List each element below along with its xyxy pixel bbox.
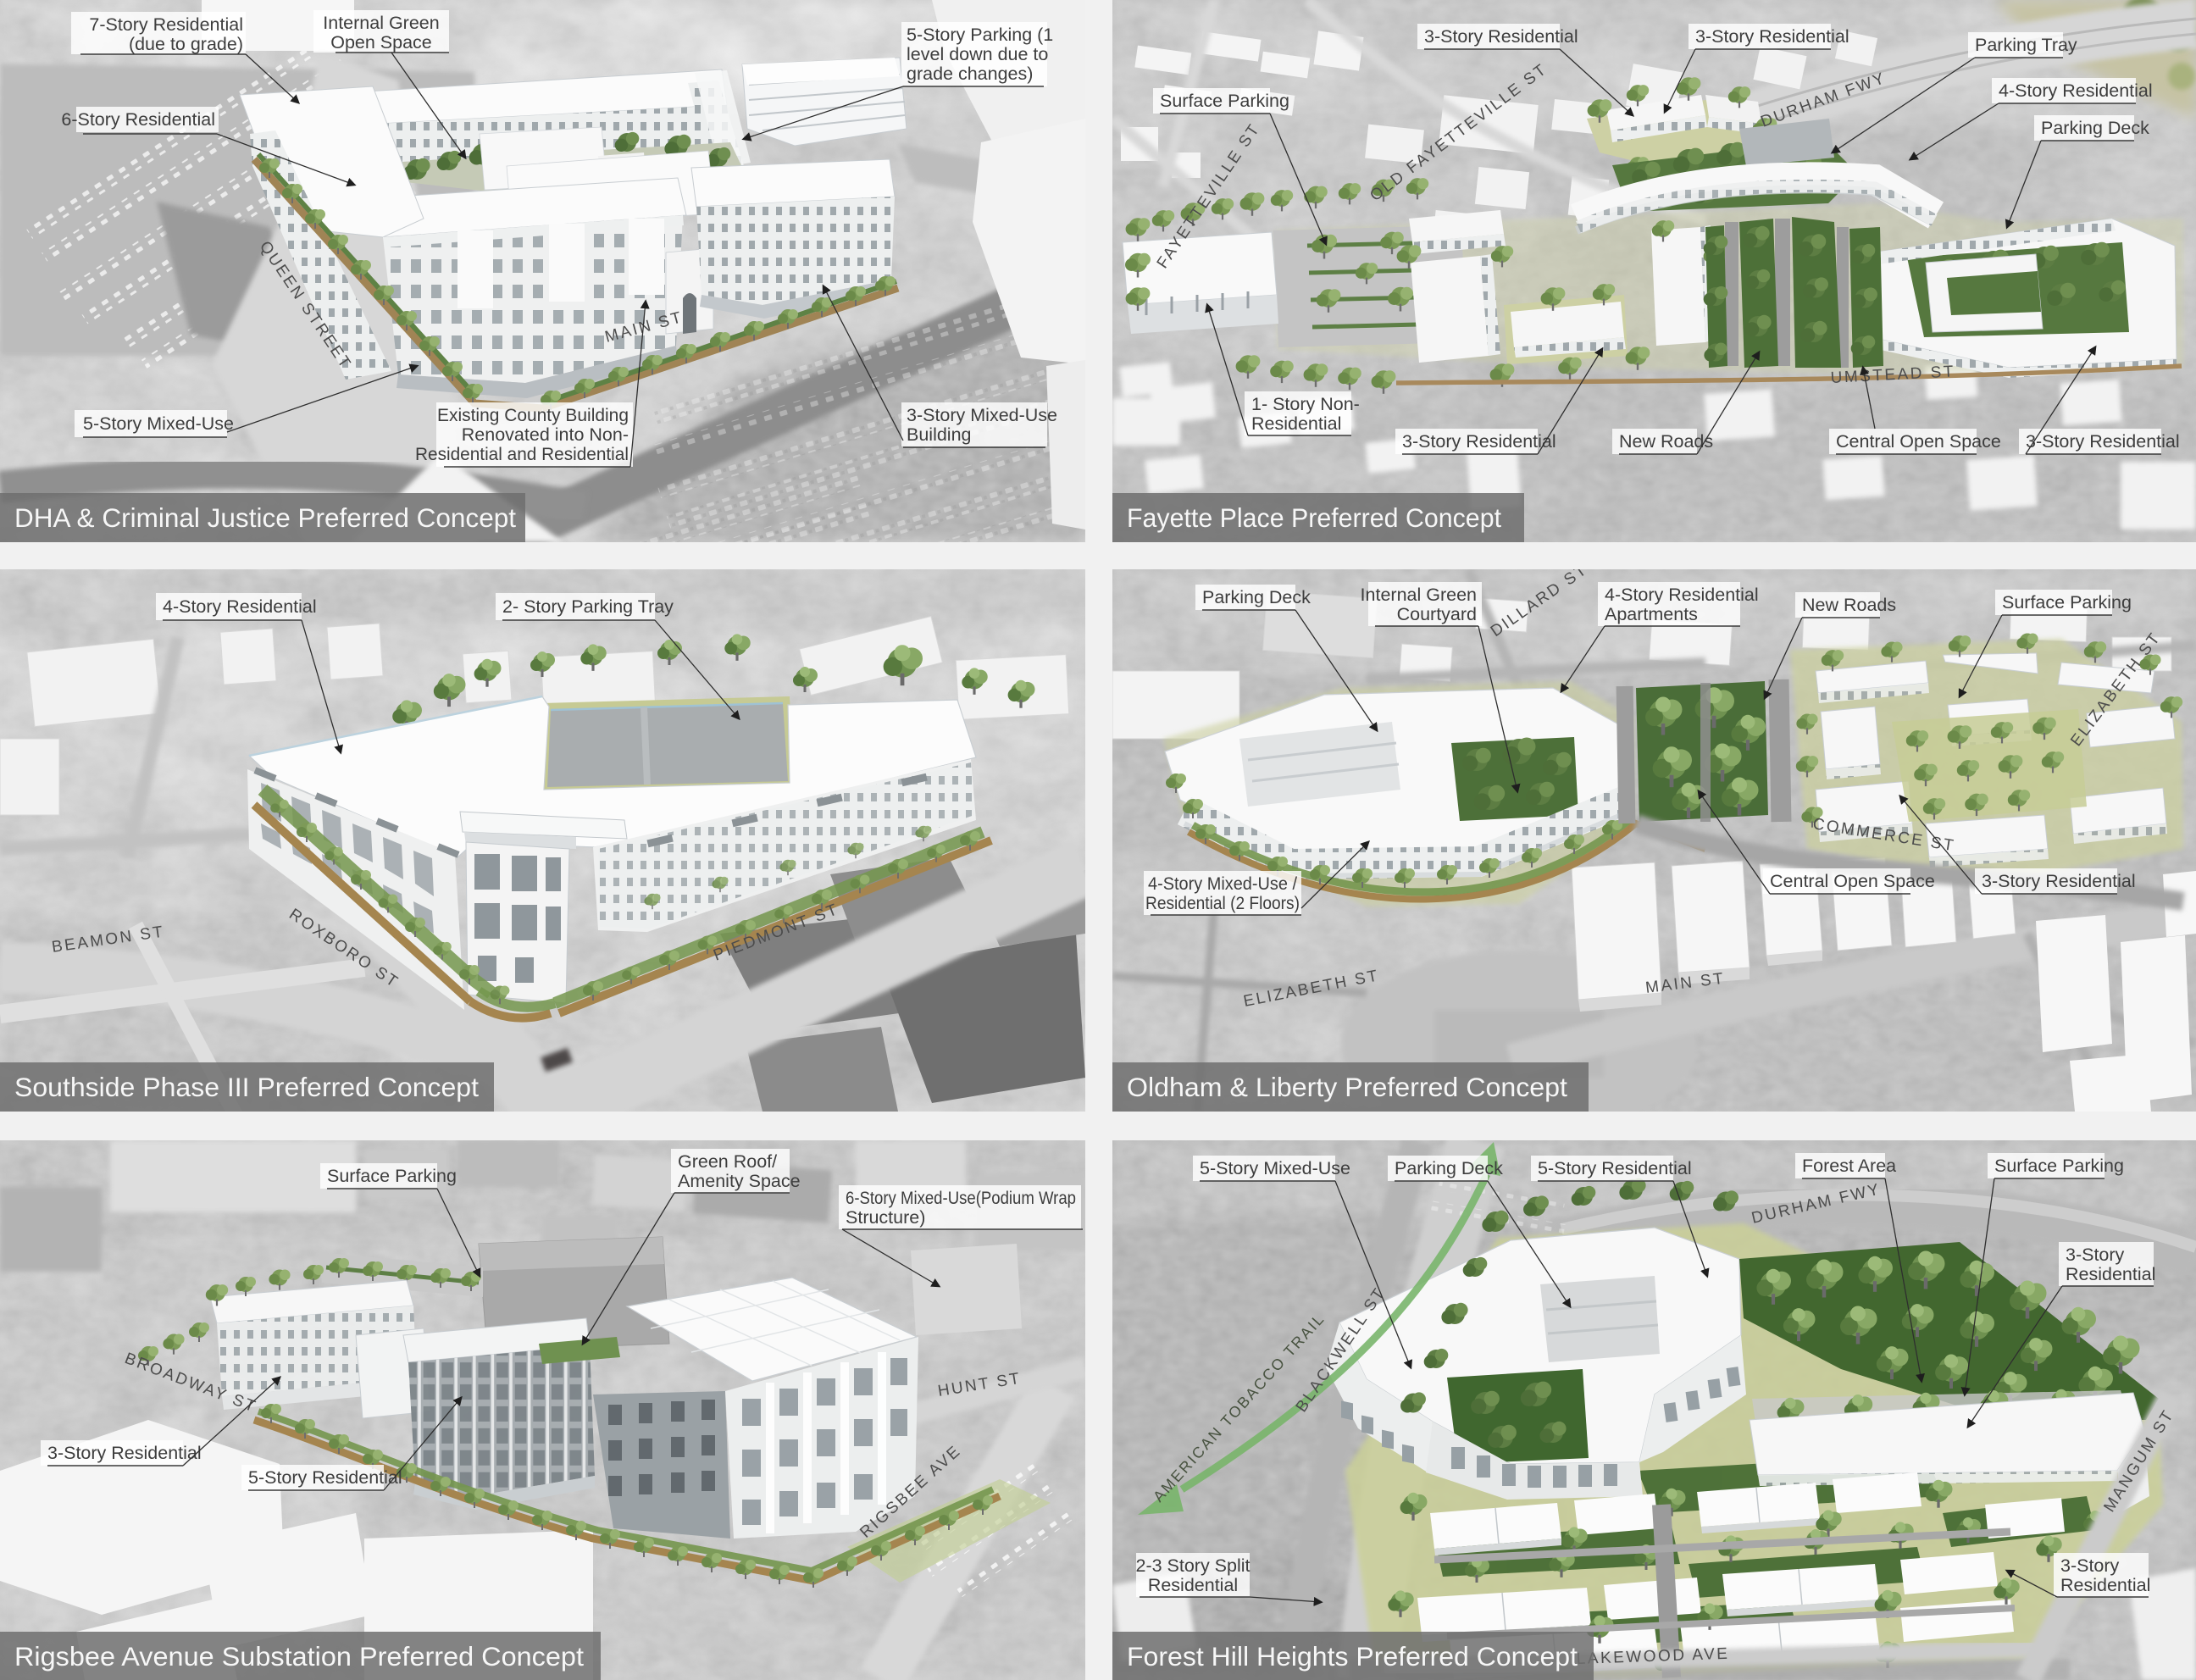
svg-text:Residential: Residential [1148,1575,1238,1595]
svg-text:2-3 Story Split: 2-3 Story Split [1135,1555,1250,1576]
svg-text:Residential: Residential [2066,1264,2155,1284]
svg-text:3-Story Residential: 3-Story Residential [1982,871,2136,891]
svg-text:Oldham & Liberty Preferred Con: Oldham & Liberty Preferred Concept [1127,1072,1567,1102]
svg-text:New Roads: New Roads [1619,431,1713,452]
svg-text:3-Story Residential: 3-Story Residential [1695,26,1849,47]
svg-text:Forest Area: Forest Area [1802,1156,1896,1176]
svg-text:Residential (2 Floors): Residential (2 Floors) [1145,893,1300,913]
svg-text:6-Story Residential: 6-Story Residential [61,109,215,130]
svg-text:3-Story Residential: 3-Story Residential [2026,431,2180,452]
svg-text:Fayette Place Preferred Concep: Fayette Place Preferred Concept [1127,502,1501,533]
svg-text:4-Story Residential: 4-Story Residential [163,596,317,617]
svg-text:grade changes): grade changes) [907,64,1033,84]
svg-text:Parking Deck: Parking Deck [1202,587,1311,607]
svg-text:Central Open Space: Central Open Space [1836,431,2001,452]
svg-text:level down due to: level down due to [907,44,1048,64]
svg-text:3-Story Residential: 3-Story Residential [47,1443,202,1463]
svg-text:Rigsbee Avenue Substation Pref: Rigsbee Avenue Substation Preferred Conc… [14,1641,584,1672]
svg-text:4-Story Residential: 4-Story Residential [1605,585,1759,605]
svg-text:Green Roof/: Green Roof/ [678,1151,777,1172]
svg-text:Courtyard: Courtyard [1397,604,1477,624]
svg-text:7-Story Residential: 7-Story Residential [89,14,243,35]
svg-text:Residential: Residential [2060,1575,2150,1595]
svg-text:Forest Hill Heights Preferred: Forest Hill Heights Preferred Concept [1127,1641,1578,1672]
svg-text:3-Story: 3-Story [2060,1555,2120,1576]
svg-text:New Roads: New Roads [1802,595,1896,615]
svg-text:Internal Green: Internal Green [323,13,439,33]
svg-text:3-Story: 3-Story [2066,1245,2125,1265]
svg-text:DHA & Criminal Justice Preferr: DHA & Criminal Justice Preferred Concept [14,502,516,533]
svg-text:Internal Green: Internal Green [1361,585,1477,605]
svg-text:Residential: Residential [1251,413,1341,434]
svg-text:6-Story Mixed-Use(Podium Wrap: 6-Story Mixed-Use(Podium Wrap [846,1188,1076,1208]
svg-text:Parking Deck: Parking Deck [1395,1158,1503,1178]
svg-text:3-Story Residential: 3-Story Residential [1424,26,1578,47]
svg-text:4-Story Mixed-Use /: 4-Story Mixed-Use / [1148,873,1297,894]
svg-text:5-Story Residential: 5-Story Residential [248,1467,402,1488]
svg-text:Apartments: Apartments [1605,604,1698,624]
svg-text:Surface Parking: Surface Parking [327,1166,457,1186]
svg-text:5-Story Mixed-Use: 5-Story Mixed-Use [1200,1158,1350,1178]
svg-text:Open Space: Open Space [330,32,432,53]
svg-text:(due to grade): (due to grade) [129,34,243,54]
svg-text:Renovated into Non-: Renovated into Non- [462,424,629,445]
svg-text:4-Story Residential: 4-Story Residential [1999,80,2153,101]
svg-text:1- Story Non-: 1- Story Non- [1251,394,1360,414]
svg-text:3-Story Mixed-Use: 3-Story Mixed-Use [907,405,1057,425]
svg-text:Building: Building [907,424,972,445]
svg-text:5-Story Parking (1: 5-Story Parking (1 [907,25,1053,45]
svg-text:Structure): Structure) [846,1207,925,1228]
svg-text:Residential and Residential: Residential and Residential [415,444,629,464]
svg-text:5-Story Mixed-Use: 5-Story Mixed-Use [83,413,234,434]
svg-text:Surface Parking: Surface Parking [2002,592,2132,613]
svg-text:Amenity Space: Amenity Space [678,1171,801,1191]
svg-text:Surface Parking: Surface Parking [1160,91,1289,111]
svg-text:5-Story Residential: 5-Story Residential [1538,1158,1692,1178]
svg-text:Parking Deck: Parking Deck [2041,118,2149,138]
svg-text:3-Story Residential: 3-Story Residential [1402,431,1556,452]
svg-text:2- Story Parking Tray: 2- Story Parking Tray [502,596,674,617]
svg-text:Existing County Building: Existing County Building [437,405,629,425]
svg-text:Central Open Space: Central Open Space [1770,871,1935,891]
svg-text:Southside Phase III Preferred: Southside Phase III Preferred Concept [14,1072,479,1102]
svg-text:Parking Tray: Parking Tray [1975,35,2077,55]
svg-text:Surface Parking: Surface Parking [1994,1156,2124,1176]
